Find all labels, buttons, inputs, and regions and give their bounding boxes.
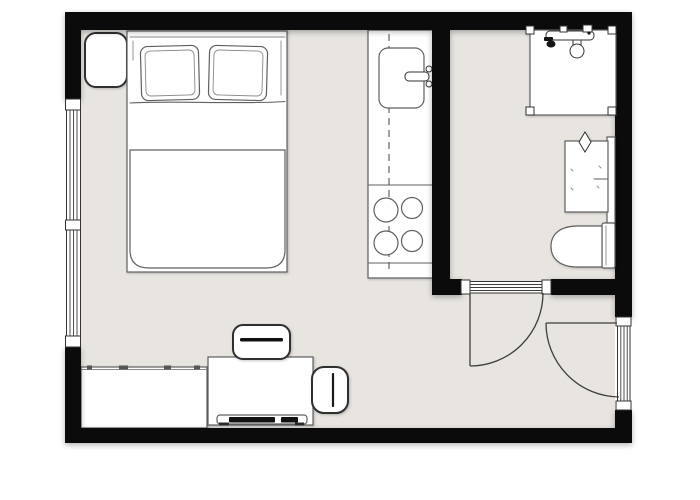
- shower-corner: [608, 26, 616, 34]
- wall-right-lower: [615, 410, 632, 443]
- sink-faucet: [405, 72, 429, 81]
- left-window: [66, 99, 81, 347]
- shower-head: [570, 44, 584, 58]
- pillow-right: [208, 45, 267, 100]
- shower-corner: [526, 26, 534, 34]
- window-sill: [66, 220, 81, 230]
- wall-left-upper: [65, 12, 81, 100]
- door-jamb: [542, 280, 551, 294]
- desk-console: [217, 415, 307, 426]
- wall-bottom: [65, 428, 632, 443]
- toilet-bowl: [551, 226, 602, 267]
- nightstand: [85, 33, 127, 87]
- desk-chair: [233, 325, 290, 359]
- kitchen-sink: [379, 48, 432, 108]
- floor-plan-canvas: [0, 0, 700, 500]
- burner: [402, 198, 423, 219]
- door-jamb: [616, 317, 631, 326]
- burner: [374, 231, 398, 255]
- wall-bathroom-vertical: [432, 30, 450, 295]
- window-sill: [66, 336, 81, 347]
- toilet-tank: [602, 223, 615, 268]
- sideboard: [81, 366, 207, 429]
- shower-corner: [608, 107, 616, 115]
- double-bed: [127, 31, 287, 272]
- shower: [526, 25, 616, 115]
- shower-corner: [526, 107, 534, 115]
- pillow-left: [140, 45, 199, 100]
- wall-top: [65, 12, 632, 30]
- wall-right-upper: [615, 12, 632, 317]
- kitchenette: [368, 30, 433, 278]
- burner: [374, 198, 398, 222]
- toilet: [551, 223, 615, 268]
- window-sill: [66, 99, 81, 110]
- wall-bathroom-bottom-right: [551, 279, 632, 295]
- armchair: [312, 367, 348, 413]
- burner: [402, 231, 423, 252]
- vanity-sink: [565, 132, 615, 223]
- duvet: [130, 150, 285, 268]
- floor-plan: [0, 0, 700, 500]
- door-jamb: [461, 280, 470, 294]
- wall-bathroom-bottom-left: [432, 279, 462, 295]
- door-jamb: [616, 401, 631, 410]
